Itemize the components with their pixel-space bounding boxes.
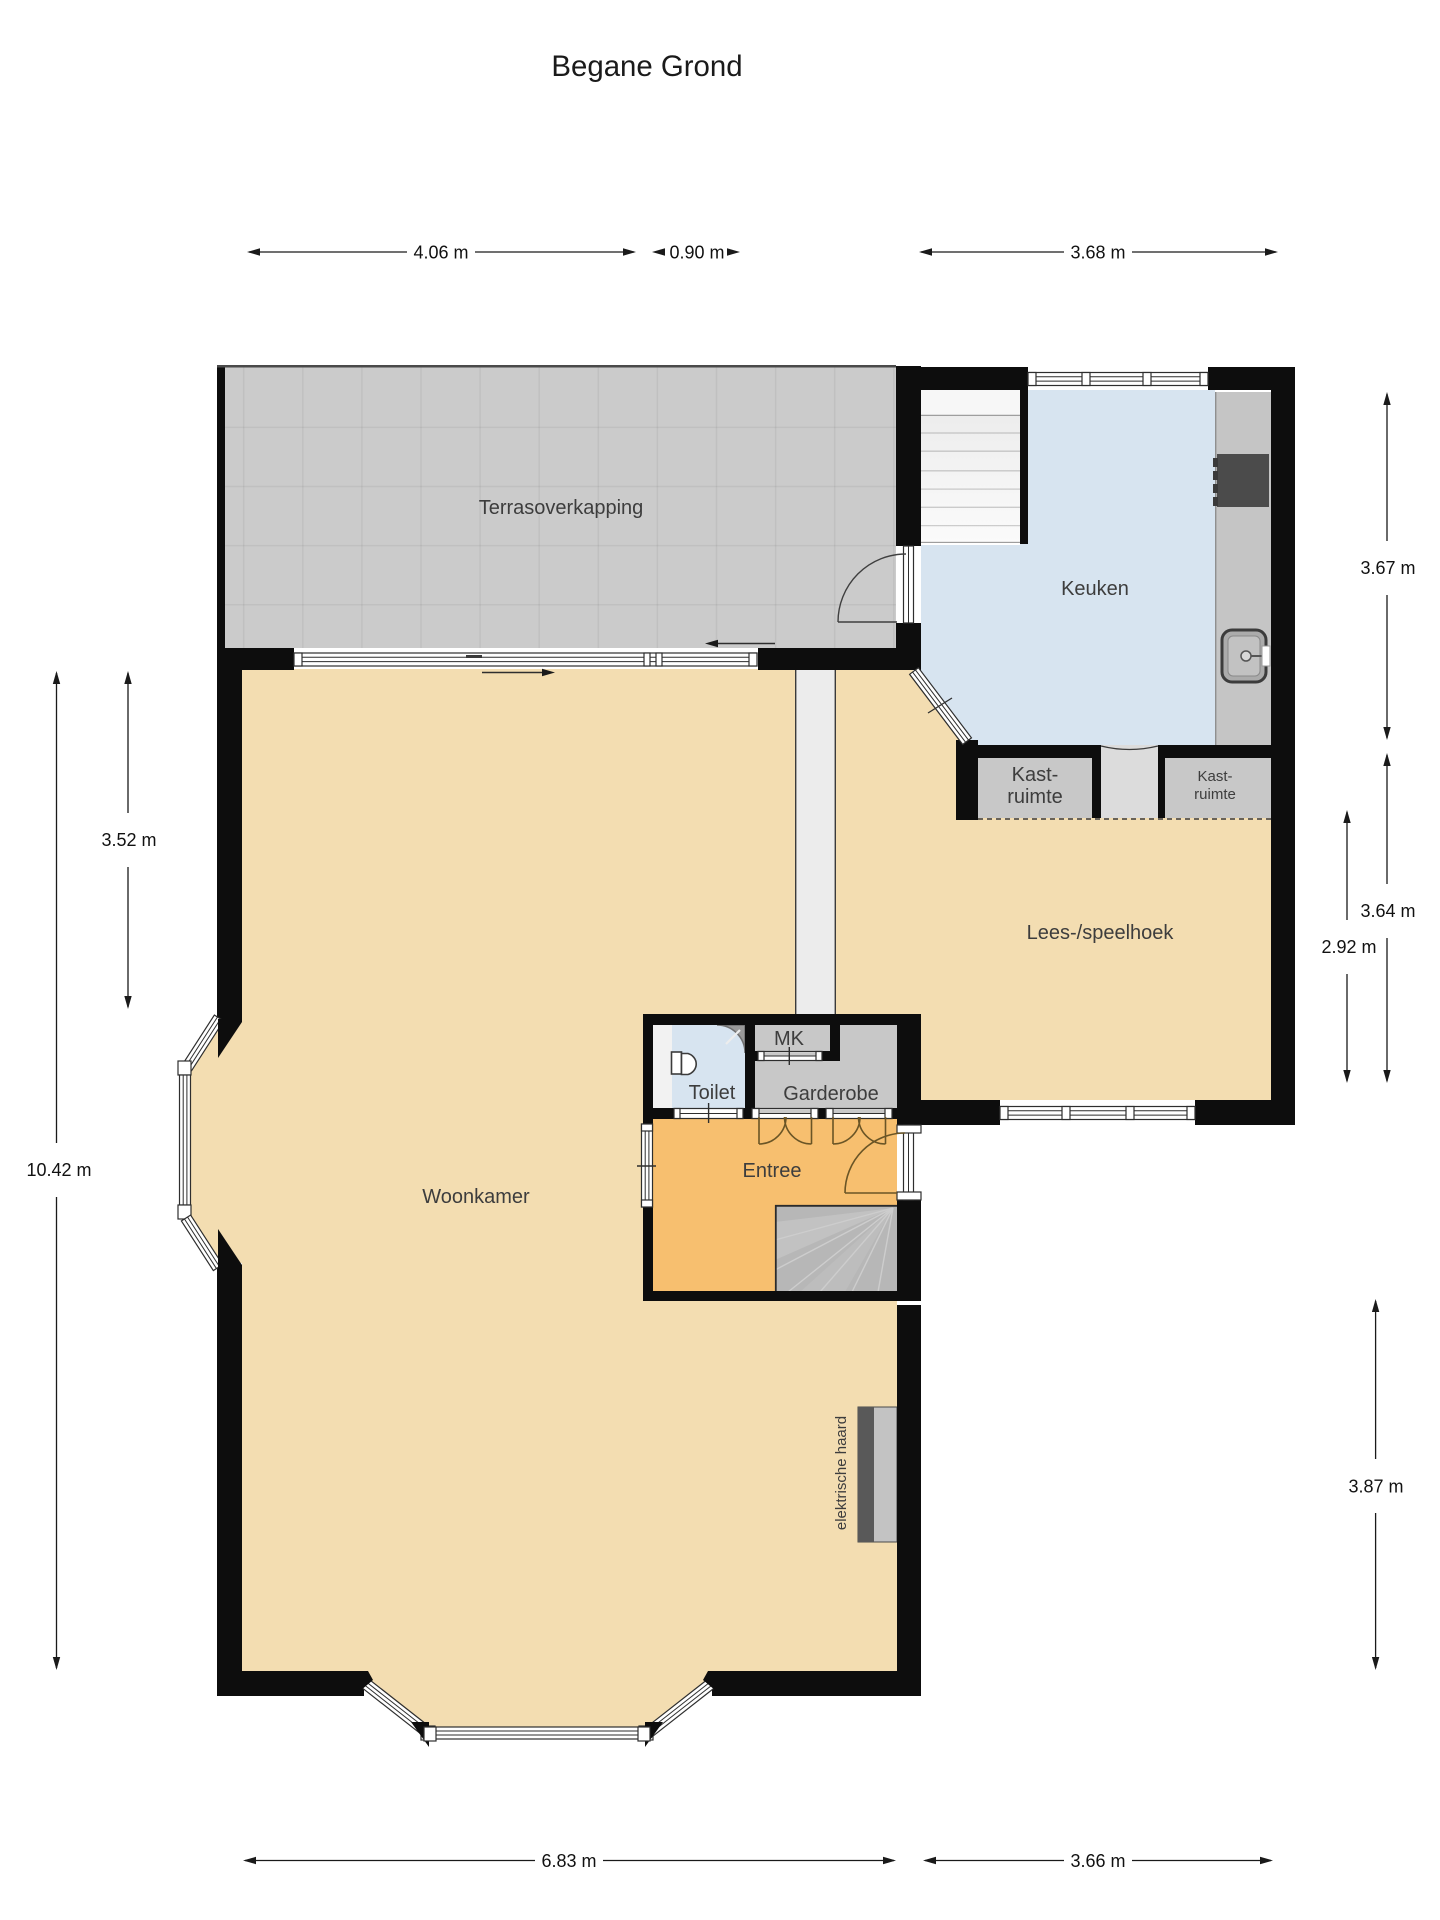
svg-text:Woonkamer: Woonkamer xyxy=(422,1186,530,1208)
svg-text:Kast-: Kast- xyxy=(1012,764,1059,786)
svg-text:3.68 m: 3.68 m xyxy=(1070,243,1125,263)
svg-text:0.90 m: 0.90 m xyxy=(669,243,724,263)
svg-text:Garderobe: Garderobe xyxy=(783,1083,879,1105)
svg-text:Toilet: Toilet xyxy=(689,1082,736,1104)
svg-text:6.83 m: 6.83 m xyxy=(541,1851,596,1871)
svg-text:3.66 m: 3.66 m xyxy=(1070,1851,1125,1871)
svg-text:Terrasoverkapping: Terrasoverkapping xyxy=(479,497,644,519)
svg-text:3.87 m: 3.87 m xyxy=(1348,1477,1403,1497)
svg-text:Begane Grond: Begane Grond xyxy=(551,50,742,83)
svg-text:elektrische haard: elektrische haard xyxy=(833,1416,850,1530)
svg-text:Kast-: Kast- xyxy=(1197,768,1232,785)
svg-text:MK: MK xyxy=(774,1028,805,1050)
svg-text:4.06 m: 4.06 m xyxy=(413,243,468,263)
svg-text:Keuken: Keuken xyxy=(1061,578,1129,600)
svg-text:3.67 m: 3.67 m xyxy=(1360,558,1415,578)
svg-text:Lees-/speelhoek: Lees-/speelhoek xyxy=(1027,922,1175,944)
svg-text:3.64 m: 3.64 m xyxy=(1360,901,1415,921)
svg-text:2.92 m: 2.92 m xyxy=(1321,937,1376,957)
svg-text:Entree: Entree xyxy=(743,1160,802,1182)
svg-text:ruimte: ruimte xyxy=(1194,786,1236,803)
svg-text:3.52 m: 3.52 m xyxy=(101,830,156,850)
svg-text:ruimte: ruimte xyxy=(1007,786,1063,808)
svg-text:10.42 m: 10.42 m xyxy=(26,1160,91,1180)
